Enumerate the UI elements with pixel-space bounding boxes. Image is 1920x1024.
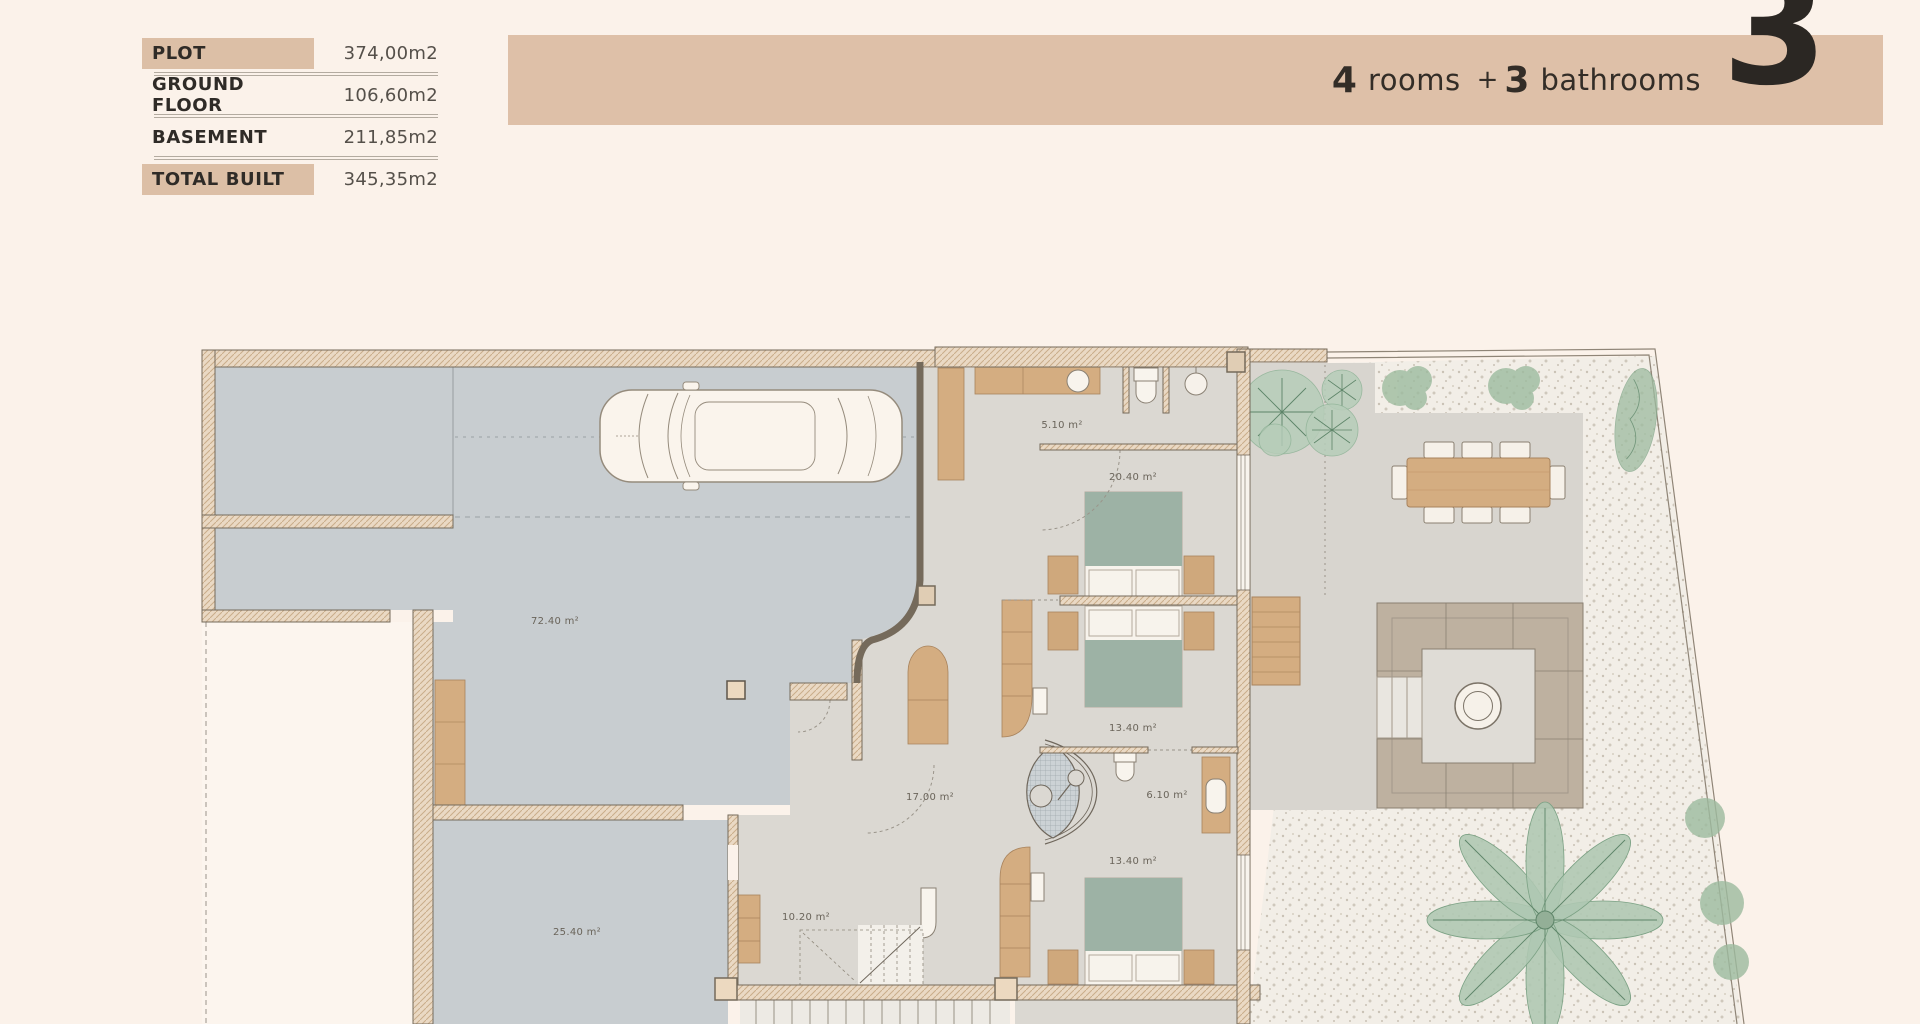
- bench: [921, 888, 936, 938]
- pillow: [1089, 955, 1132, 981]
- chair-icon: [1500, 507, 1530, 523]
- area-label-entry: 5.10 m²: [1041, 420, 1082, 431]
- bed-bedroom1: [1085, 492, 1182, 600]
- wood-planter: [1252, 597, 1300, 685]
- basin-icon: [1206, 779, 1226, 813]
- area-label-storage: 25.40 m²: [553, 927, 601, 938]
- desk: [1033, 688, 1047, 714]
- mirror-icon: [683, 482, 699, 490]
- area-label-bathroom: 6.10 m²: [1146, 790, 1187, 801]
- sink-icon: [1067, 370, 1089, 392]
- bed-bedroom2: [1085, 606, 1182, 707]
- chair-icon: [1500, 442, 1530, 458]
- nightstand: [1184, 950, 1214, 984]
- shower-head-icon: [1068, 770, 1084, 786]
- pillow: [1089, 570, 1132, 596]
- door-opening: [728, 845, 738, 880]
- car-icon: [600, 382, 902, 490]
- garden-area: [1240, 349, 1749, 1024]
- nightstand: [1048, 950, 1078, 984]
- light-well: [202, 622, 413, 1024]
- storage-room-floor: [215, 362, 453, 515]
- pergola-lounge: [1377, 603, 1583, 808]
- chair-icon: [1462, 507, 1492, 523]
- bed-bedroom3: [1085, 878, 1182, 985]
- toilet-icon: [1114, 752, 1136, 781]
- toilet-icon: [1134, 368, 1158, 403]
- chair-icon: [1550, 466, 1565, 499]
- nightstand: [1184, 612, 1214, 650]
- column: [918, 586, 935, 605]
- chair-icon: [1424, 442, 1454, 458]
- chair-icon: [1392, 466, 1407, 499]
- area-label-bedroom2: 13.40 m²: [1109, 723, 1157, 734]
- sink-icon: [1030, 785, 1052, 807]
- column: [715, 978, 737, 1000]
- column: [727, 681, 745, 699]
- table-top: [1407, 458, 1550, 507]
- bed-duvet: [1085, 640, 1182, 707]
- area-label-stairs: 10.20 m²: [782, 912, 830, 923]
- bed-duvet: [1085, 878, 1182, 951]
- brochure-page: { "page": { "background": "#fbf2ea", "ac…: [0, 0, 1920, 1024]
- chair-icon: [1462, 442, 1492, 458]
- pillow: [1089, 610, 1132, 636]
- area-label-bedroom1: 20.40 m²: [1109, 472, 1157, 483]
- fire-pit-icon: [1455, 683, 1501, 729]
- pillow: [1136, 610, 1179, 636]
- column: [1227, 352, 1245, 372]
- wardrobe: [435, 680, 465, 808]
- area-label-hall: 17.00 m²: [906, 792, 954, 803]
- nightstand: [1184, 556, 1214, 594]
- tree-icon: [1306, 404, 1358, 456]
- arch-console: [908, 646, 948, 744]
- area-label-bedroom3: 13.40 m²: [1109, 856, 1157, 867]
- tree-icon: [1259, 424, 1291, 456]
- chair-icon: [1424, 507, 1454, 523]
- closet: [938, 368, 964, 480]
- corridor-floor: [215, 528, 453, 610]
- pillow: [1136, 955, 1179, 981]
- pergola-steps: [1377, 677, 1422, 738]
- pillow: [1136, 570, 1179, 596]
- storage-room-25-floor: [433, 820, 728, 1024]
- column: [995, 978, 1017, 1000]
- area-label-garage: 72.40 m²: [531, 616, 579, 627]
- nightstand: [1048, 612, 1078, 650]
- shelf: [1031, 873, 1044, 901]
- bed-duvet: [1085, 492, 1182, 566]
- floor-plan: 72.40 m² 5.10 m² 20.40 m² 13.40 m² 17.00…: [0, 0, 1920, 1024]
- nightstand: [1048, 556, 1078, 594]
- mirror-icon: [683, 382, 699, 390]
